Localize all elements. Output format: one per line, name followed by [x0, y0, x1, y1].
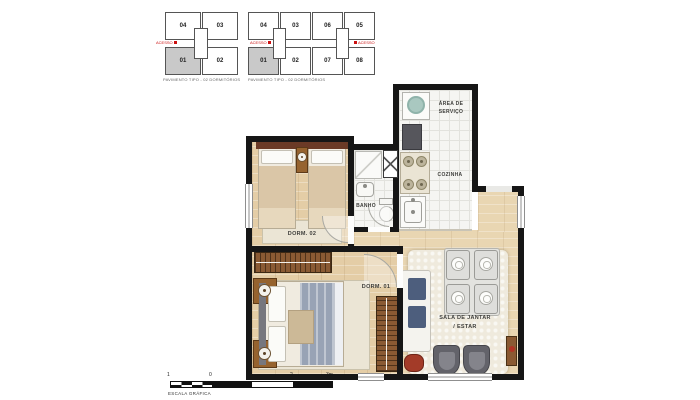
unit-number: 02: [217, 58, 224, 64]
sofa-cushion-2: [408, 306, 426, 328]
living-window-bottom: [428, 373, 492, 381]
access-marker-icon: [268, 41, 271, 44]
unit-number: 04: [260, 23, 267, 29]
unit-number: 01: [180, 58, 187, 64]
key-plan-2-caption: PAVIMENTO TIPO - 02 DORMITÓRIOS: [248, 77, 325, 82]
access-text: ACESSO: [358, 40, 375, 45]
key-plan-1-caption: PAVIMENTO TIPO - 02 DORMITÓRIOS: [163, 77, 240, 82]
unit-number: 07: [324, 58, 331, 64]
banho-label: BANHO: [353, 203, 379, 209]
double-bed-blanket-edge: [334, 283, 343, 365]
unit-number: 03: [217, 23, 224, 29]
double-bed-pillow-2: [268, 326, 286, 362]
shower: [355, 151, 382, 179]
unit-number: 05: [356, 23, 363, 29]
bathroom-faucet-icon: [363, 184, 367, 188]
dorm02-lamp: [297, 152, 307, 162]
wall-left: [246, 136, 252, 380]
plate-4: [479, 291, 493, 305]
stove-burner-2: [416, 156, 427, 167]
key-plan-2-elevator-core-left: [273, 28, 286, 59]
floor-plan-page: 04 03 01 02 ACESSO PAVIMENTO TIPO - 02 D…: [0, 0, 700, 400]
sala-label-line1: SALA DE JANTAR: [425, 315, 505, 321]
sala-label-line2: / ESTAR: [425, 324, 505, 330]
unit-number: 02: [292, 58, 299, 64]
scale-segment-2-3: [293, 382, 333, 387]
unit-number: 08: [356, 58, 363, 64]
single-bed-1-fold: [259, 208, 295, 228]
dorm01-wardrobe-top-rail: [256, 262, 330, 263]
single-bed-1-pillow: [261, 150, 293, 164]
dorm01-lamp-bottom: [258, 347, 271, 360]
key-plan-2-access-label-left: ACESSO: [250, 40, 271, 45]
key-plan-2: 04 03 06 05 01 02 07 08 ACESSO ACESSO PA…: [248, 12, 375, 82]
water-heater: [402, 124, 422, 150]
red-pouf: [404, 354, 424, 372]
armchair-1: [433, 345, 460, 376]
stove-burner-3: [403, 179, 414, 190]
scale-segment-subdivided: [171, 382, 212, 387]
toilet-tank: [379, 198, 393, 205]
key-plan-1-elevator-core: [194, 28, 208, 59]
scale-segment-0-1: [212, 382, 252, 387]
area-servico-label-line1: ÁREA DE: [430, 101, 472, 107]
dorm01-wardrobe-right: [376, 296, 398, 372]
kitchen-drain-icon: [411, 210, 415, 214]
kitchen-threshold: [399, 229, 472, 231]
scale-tick-0: 0: [209, 372, 212, 378]
dorm01-label: DORM. 01: [350, 284, 402, 290]
stove-burner-4: [416, 179, 427, 190]
unit-number: 01: [260, 58, 267, 64]
dorm01-lamp-top: [258, 284, 271, 297]
scale-segment-1-2: [252, 382, 293, 387]
sofa-cushion-1: [408, 278, 426, 300]
scale-tick-1: 1: [167, 372, 170, 378]
double-bed-throw: [288, 310, 314, 344]
cozinha-label: COZINHA: [428, 172, 472, 178]
single-bed-2-pillow: [311, 150, 343, 164]
key-plan-2-access-label-right: ACESSO: [354, 40, 375, 45]
wall-kitchen-right: [472, 84, 478, 192]
dorm02-door-opening: [348, 216, 354, 244]
key-plan-2-elevator-core-right: [336, 28, 349, 59]
plate-2: [479, 257, 493, 271]
scale-bar: [170, 381, 333, 388]
armchair-2: [463, 345, 490, 376]
unit-number: 03: [292, 23, 299, 29]
entry-foyer-floor: [478, 192, 518, 232]
access-text: ACESSO: [250, 40, 267, 45]
dorm01-wardrobe-right-rail: [386, 298, 387, 370]
area-servico-label-line2: SERVIÇO: [430, 109, 472, 115]
red-vase: [509, 346, 515, 352]
wall-dorm01-top: [246, 246, 403, 252]
access-marker-icon: [174, 41, 177, 44]
key-plan-1: 04 03 01 02 ACESSO PAVIMENTO TIPO - 02 D…: [163, 12, 240, 82]
living-window-right: [517, 196, 525, 228]
dorm02-window: [245, 184, 253, 228]
plate-1: [451, 257, 465, 271]
scale-bar-label: ESCALA GRÁFICA: [168, 391, 211, 396]
linen-closet: [383, 150, 398, 178]
stove-burner-1: [403, 156, 414, 167]
dorm02-label: DORM. 02: [272, 231, 332, 237]
access-marker-icon: [354, 41, 357, 44]
kitchen-faucet-icon: [411, 198, 415, 202]
key-plan-1-access-label: ACESSO: [156, 40, 177, 45]
dorm01-door-opening: [397, 254, 403, 288]
entry-door-opening: [486, 186, 512, 192]
plate-3: [451, 291, 465, 305]
washing-machine-drum-icon: [407, 96, 425, 114]
hall-floor: [354, 232, 399, 246]
unit-number: 06: [324, 23, 331, 29]
wall-dorm02-top: [246, 136, 354, 142]
access-text: ACESSO: [156, 40, 173, 45]
dorm01-window: [358, 373, 384, 381]
wall-kitchen-top: [393, 84, 478, 90]
unit-number: 04: [180, 23, 187, 29]
banho-door-opening: [368, 227, 390, 232]
